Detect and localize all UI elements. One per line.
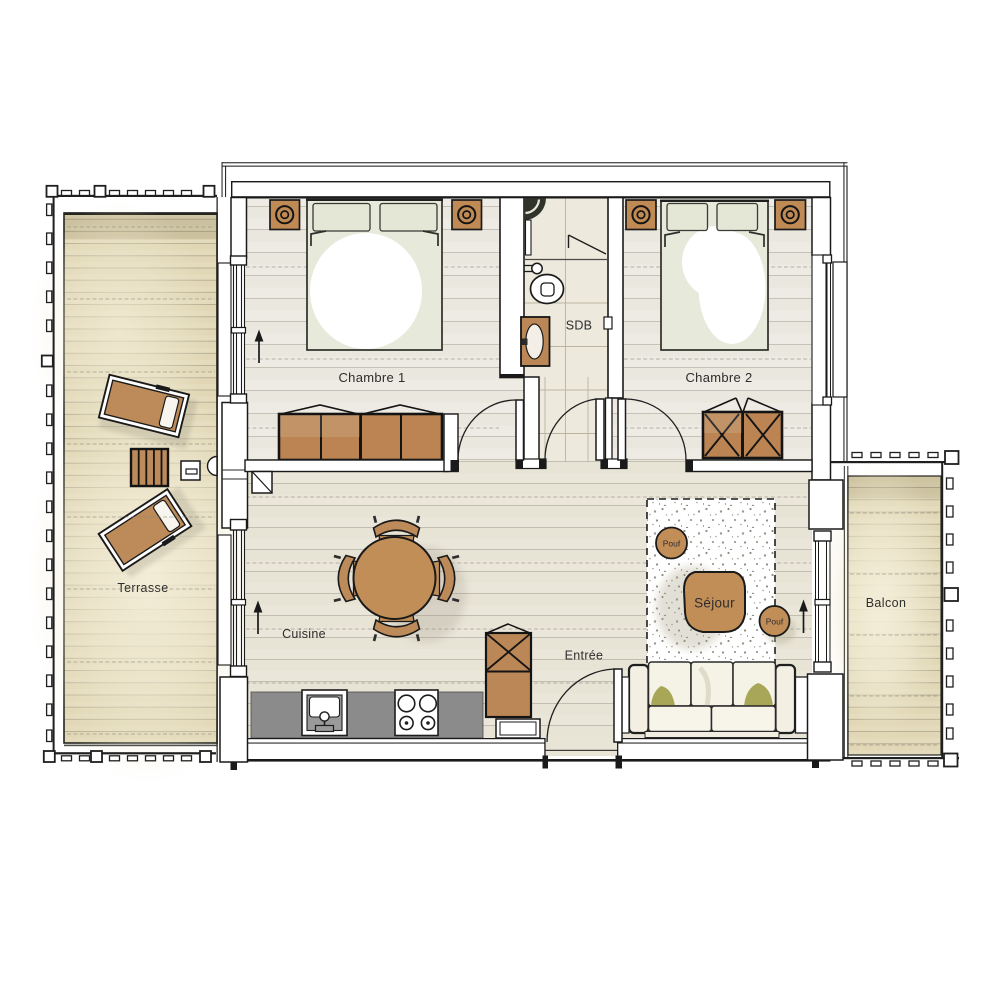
svg-text:Pouf: Pouf (663, 539, 681, 549)
svg-text:Entrée: Entrée (565, 649, 604, 663)
svg-text:Séjour: Séjour (694, 596, 735, 611)
svg-text:Terrasse: Terrasse (117, 581, 168, 595)
svg-text:Balcon: Balcon (866, 596, 907, 610)
svg-text:Pouf: Pouf (766, 617, 784, 627)
svg-text:Cuisine: Cuisine (282, 627, 326, 641)
svg-text:Chambre 1: Chambre 1 (338, 370, 405, 385)
svg-text:Chambre 2: Chambre 2 (685, 370, 752, 385)
svg-text:SDB: SDB (566, 319, 593, 333)
